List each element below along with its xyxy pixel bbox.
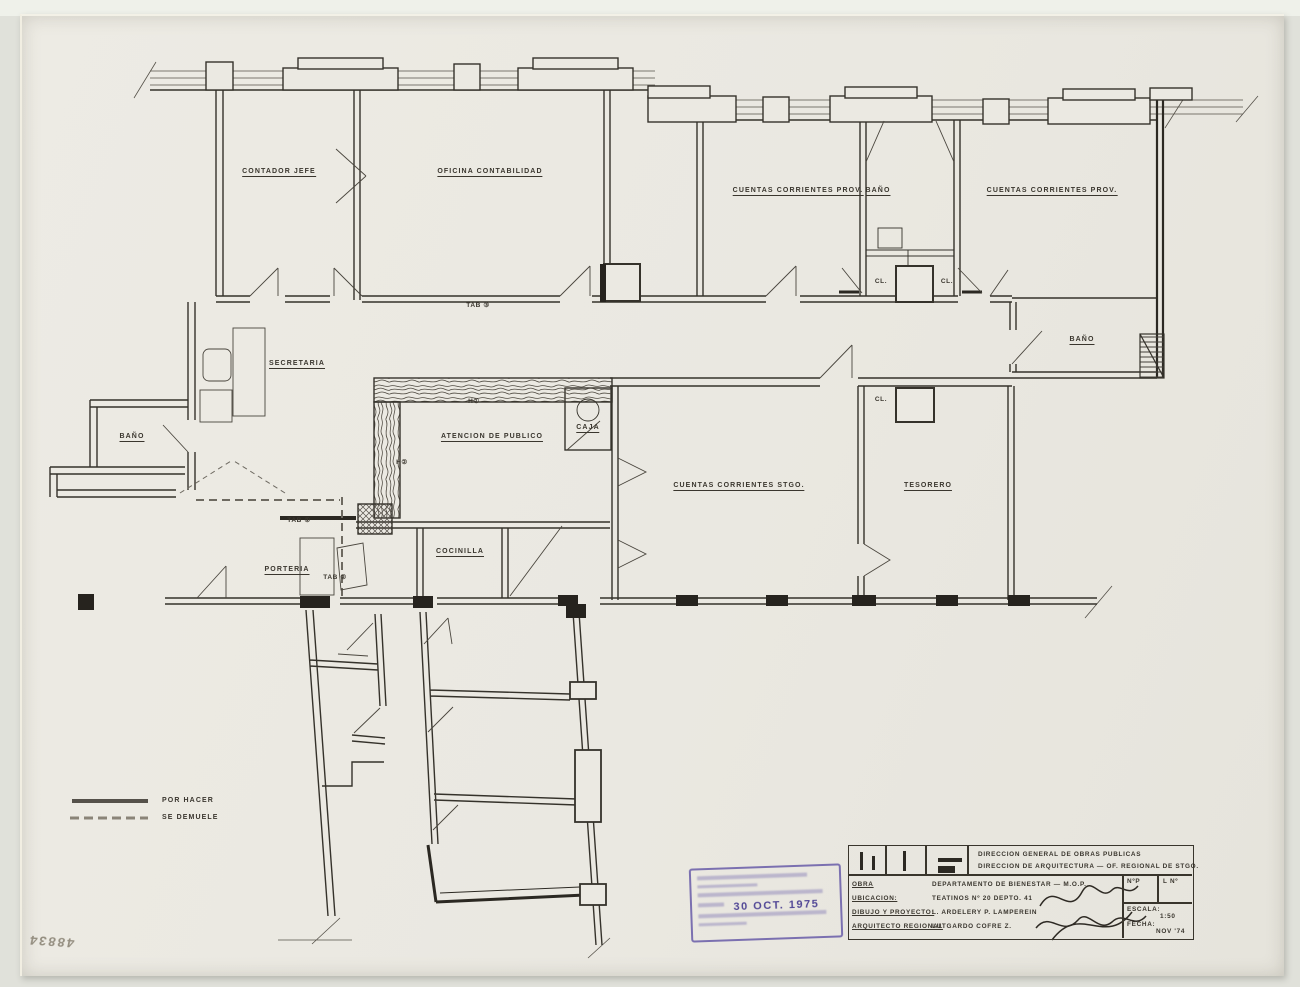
closet-label-1: CL. [875,278,887,285]
np-label: NºP [1127,878,1140,885]
hatched-walls [358,378,612,534]
room-label-bano-left: BAÑO [119,433,144,442]
escala-divider [1122,902,1192,904]
tag-h-2: H② [396,458,408,466]
ln-label: L Nº [1163,878,1178,885]
tag-tab-3: TAB ③ [466,301,490,309]
room-label-caja: CAJA [576,424,599,433]
fecha-value: NOV '74 [1156,928,1185,935]
escala-label: ESCALA: [1127,906,1160,913]
demolition-lines [180,461,342,598]
room-label-secretaria: SECRETARIA [269,360,325,369]
escala-value: 1:50 [1160,913,1176,920]
room-label-cuentas-prov-2: CUENTAS CORRIENTES PROV. [987,187,1118,196]
row-dibujo-label: DIBUJO Y PROYECTO: [852,909,934,916]
np-ln-divider [1157,874,1159,902]
closet-label-2: CL. [941,278,953,285]
logo-divider-3 [967,845,969,875]
row-arquitecto-value: LUTGARDO COFRE Z. [932,923,1012,930]
walls-heavy [280,100,1163,902]
legend-se-demuele: SE DEMUELE [162,814,219,821]
handwritten-number: 48834 [26,932,75,950]
tag-h-1: H① [468,397,480,405]
room-label-cocinilla: COCINILLA [436,548,484,557]
solid-piers [78,264,1030,618]
tag-tab-1: TAB ① [287,516,311,524]
row-ubicacion-value: TEATINOS Nº 20 DEPTO. 41 [932,895,1033,902]
right-col-divider [1122,874,1124,938]
room-label-cuentas-stgo: CUENTAS CORRIENTES STGO. [673,482,804,491]
room-label-contador-jefe: CONTADOR JEFE [242,168,316,177]
fecha-label: FECHA: [1127,921,1155,928]
title-block-divider [848,874,1192,876]
room-label-tesorero: TESORERO [904,482,952,491]
floor-plan-linework [0,0,1300,987]
room-label-porteria: PORTERIA [265,566,310,575]
window-lines [134,62,1258,958]
date-stamp: 30 OCT. 1975 [689,863,843,942]
logo-divider-2 [925,845,927,875]
row-dibujo-value: L. ARDELERY P. LAMPEREIN [932,909,1037,916]
row-ubicacion-label: UBICACION: [852,895,897,902]
legend-lines [70,801,148,818]
stairs [1140,334,1164,378]
org-line-2: DIRECCION DE ARQUITECTURA — OF. REGIONAL… [978,863,1199,870]
row-arquitecto-label: ARQUITECTO REGIONAL [852,923,943,930]
logo-divider-1 [885,845,887,875]
room-label-cuentas-prov-1: CUENTAS CORRIENTES PROV. [733,187,864,196]
door-swings [163,121,1042,830]
row-obra-value: DEPARTAMENTO DE BIENESTAR — M.O.P. [932,881,1087,888]
legend-por-hacer: POR HACER [162,797,214,804]
room-label-bano-top: BAÑO [865,187,890,196]
room-label-oficina-contabilidad: OFICINA CONTABILIDAD [437,168,542,177]
room-label-atencion-publico: ATENCION DE PUBLICO [441,433,543,442]
row-obra-label: OBRA [852,881,874,888]
tag-tab-2: TAB ② [323,573,347,581]
room-label-bano-right: BAÑO [1069,336,1094,345]
org-line-1: DIRECCION GENERAL DE OBRAS PUBLICAS [978,851,1141,858]
closet-label-3: CL. [875,396,887,403]
